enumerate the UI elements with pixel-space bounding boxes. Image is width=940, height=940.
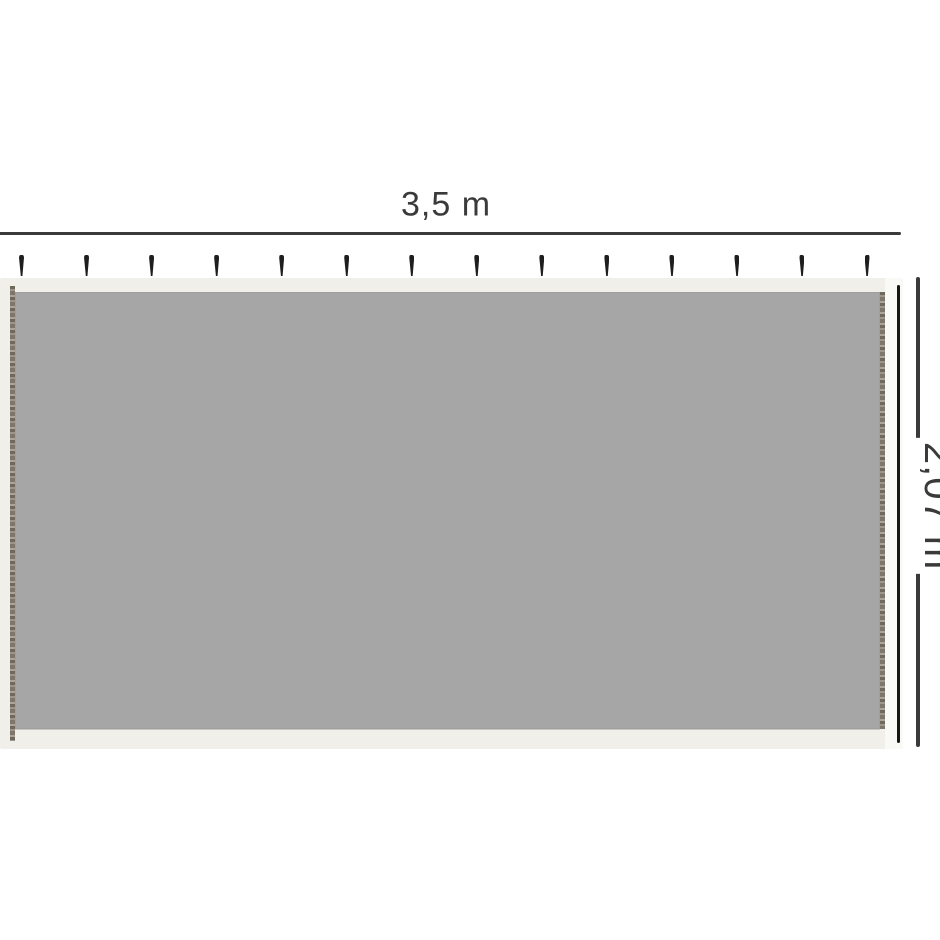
hanging-hook <box>149 255 154 276</box>
hanging-hook <box>344 255 349 276</box>
hanging-hook <box>539 255 544 276</box>
hanging-hook <box>19 255 24 276</box>
mesh-surface <box>15 292 880 729</box>
right-mesh-edge <box>880 292 885 729</box>
hanging-hook <box>865 255 870 276</box>
hanging-hook <box>214 255 219 276</box>
hanging-hook <box>734 255 739 276</box>
hanging-hook <box>84 255 89 276</box>
hanging-hook <box>409 255 414 276</box>
right-zipper <box>897 285 900 743</box>
hanging-hook <box>799 255 804 276</box>
hanging-hook <box>604 255 609 276</box>
panel-dimension-diagram: 3,5 m 2,07 m <box>0 0 940 940</box>
left-zipper <box>10 286 15 741</box>
width-dimension-label: 3,5 m <box>401 186 491 225</box>
hanging-hook <box>279 255 284 276</box>
hanging-hook <box>474 255 479 276</box>
fabric-panel <box>0 278 903 749</box>
hanging-hook <box>669 255 674 276</box>
panel-right-border <box>885 278 903 749</box>
height-dimension-label: 2,07 m <box>915 438 940 574</box>
hooks-row <box>0 255 940 277</box>
width-dimension-line <box>0 232 901 235</box>
